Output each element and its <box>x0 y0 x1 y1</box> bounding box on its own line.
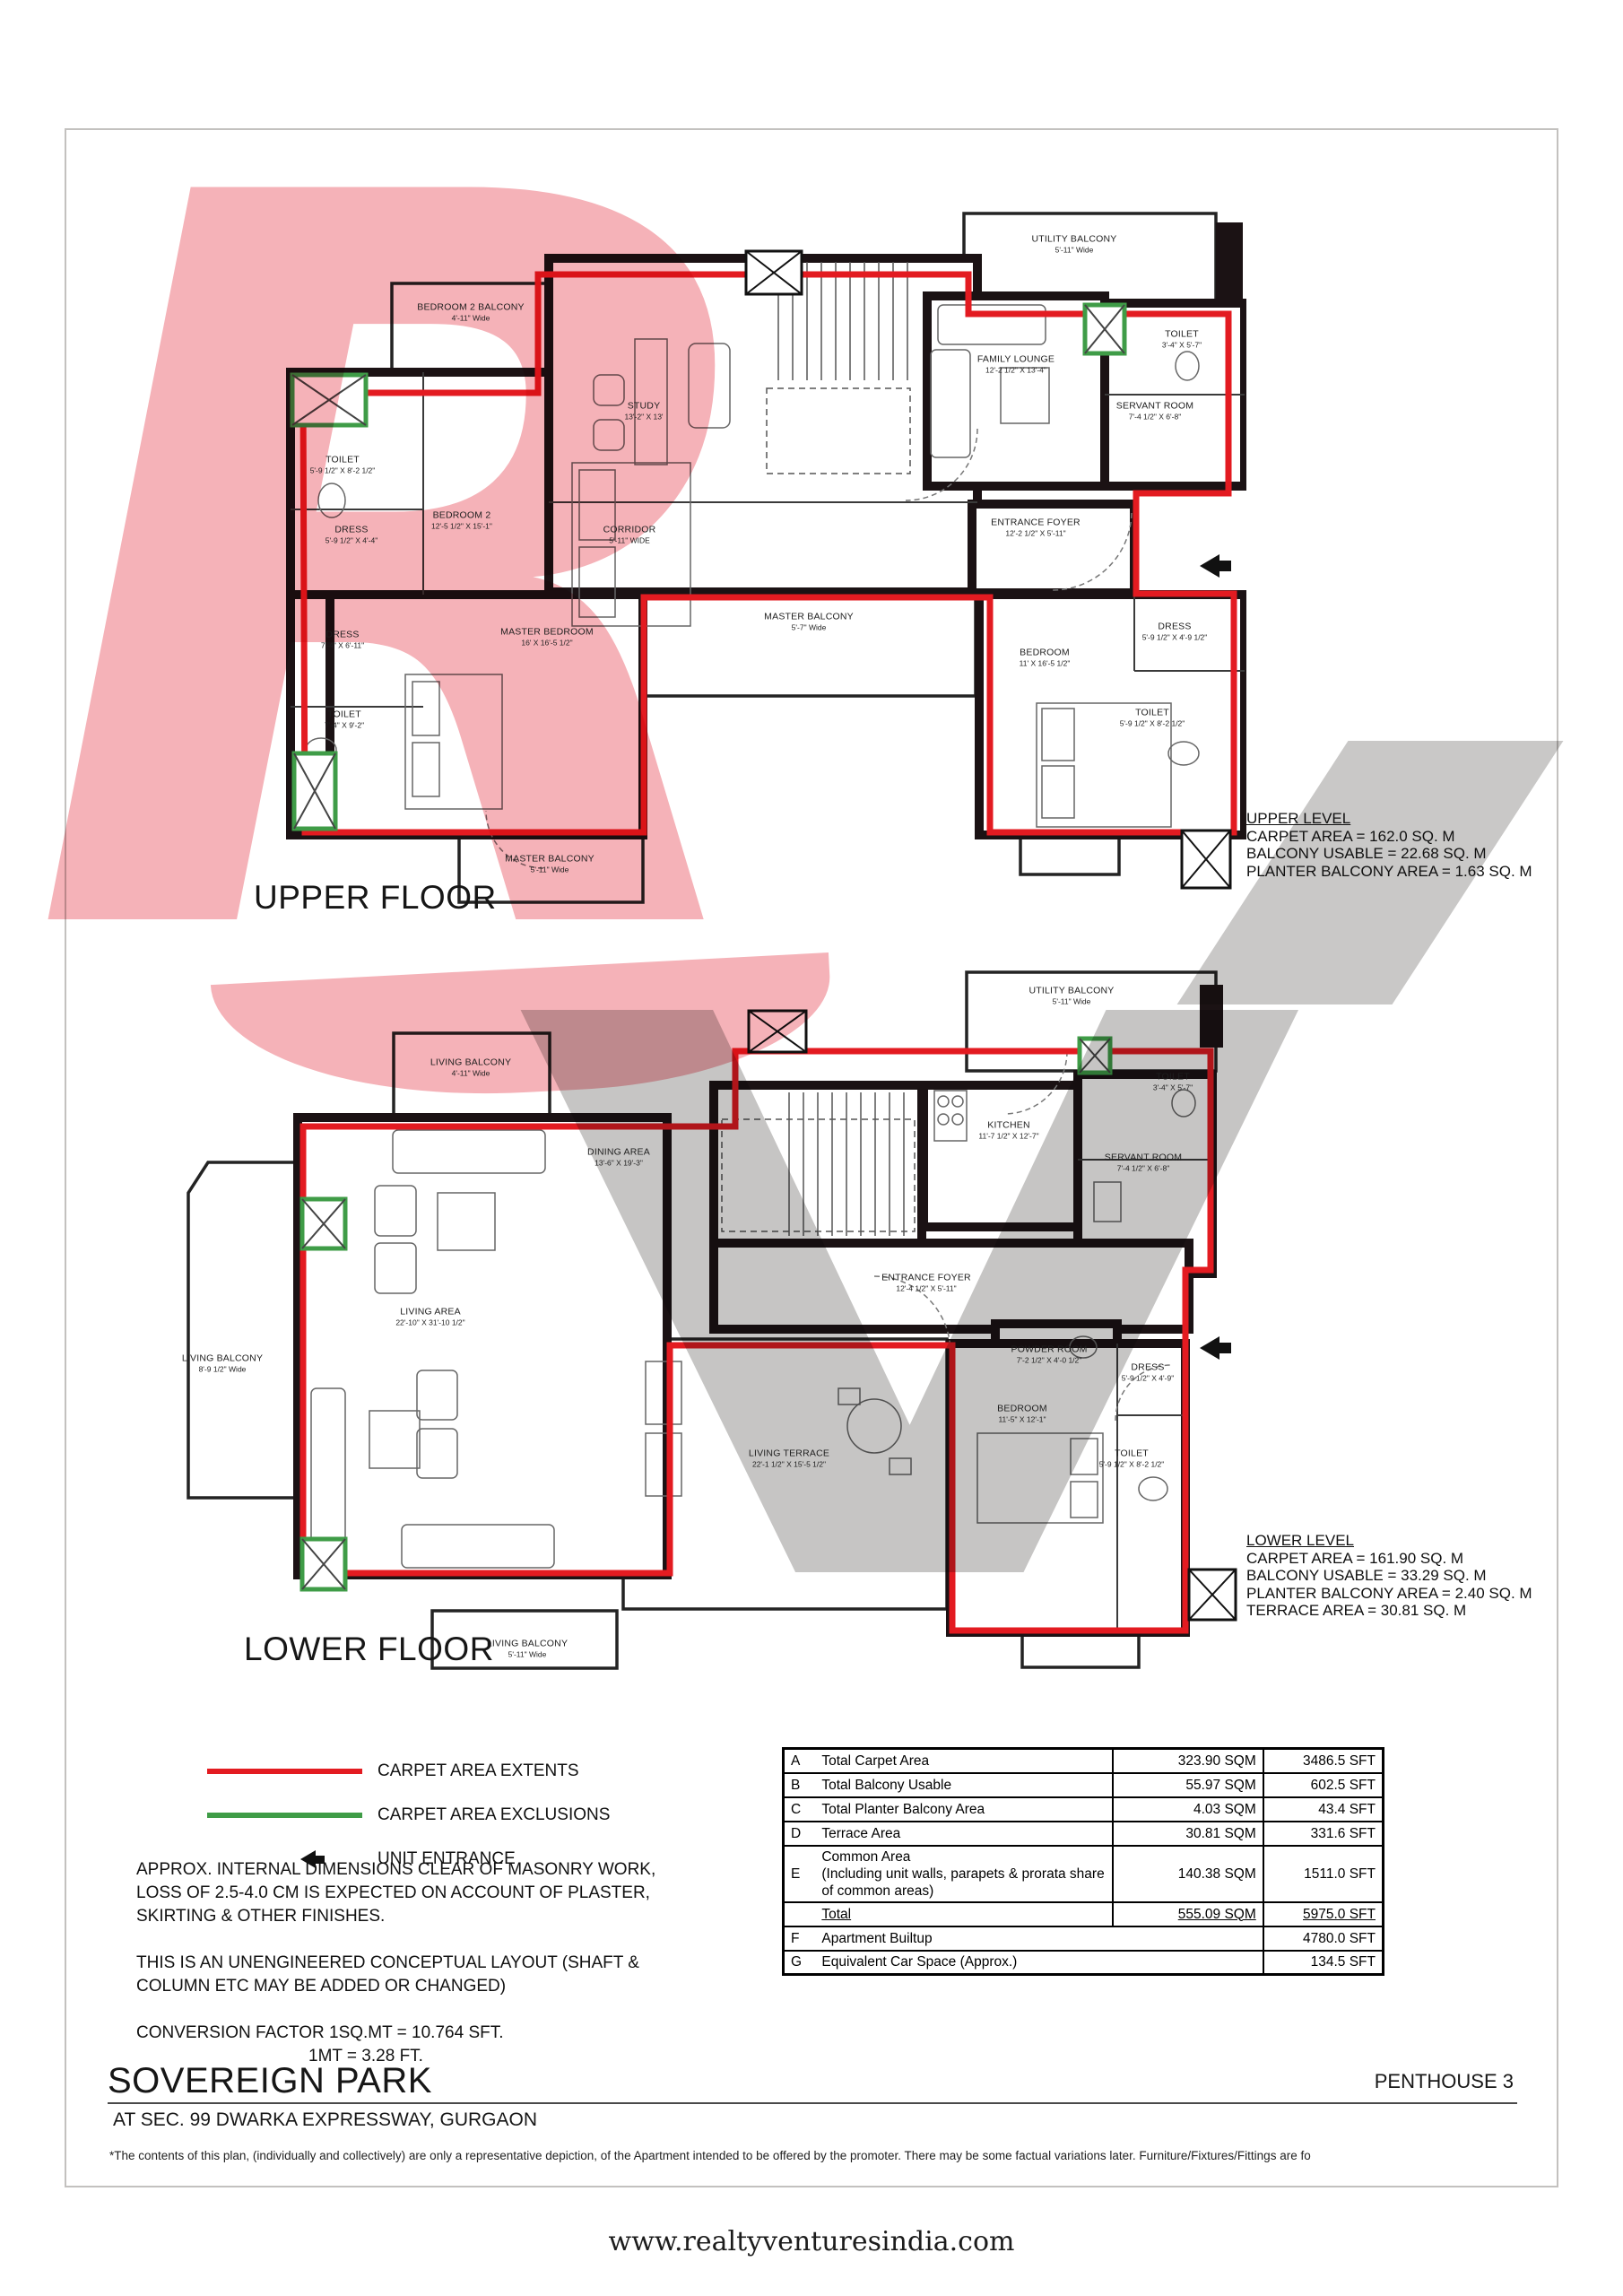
note-conversion-1: CONVERSION FACTOR 1SQ.MT = 10.764 SFT. <box>136 2022 674 2045</box>
room-label: LIVING AREA22'-10" X 31'-10 1/2" <box>395 1307 464 1327</box>
room-label: MASTER BALCONY5'-7" Wide <box>764 612 854 632</box>
lower-level-stats-lines: CARPET AREA = 161.90 SQ. MBALCONY USABLE… <box>1246 1550 1532 1620</box>
room-label: BEDROOM 212'-5 1/2" X 15'-1" <box>431 510 492 531</box>
room-label: ENTRANCE FOYER12'-2 1/2" X 5'-11" <box>991 517 1081 538</box>
table-cell: 4.03 SQM <box>1113 1797 1263 1822</box>
table-cell: G <box>784 1951 816 1975</box>
table-row: Total555.09 SQM5975.0 SFT <box>784 1902 1384 1926</box>
exclusion-swatch-icon <box>207 1805 362 1825</box>
stat-line: PLANTER BALCONY AREA = 1.63 SQ. M <box>1246 863 1532 881</box>
table-cell: B <box>784 1773 816 1797</box>
table-cell: F <box>784 1926 816 1951</box>
table-cell: Total <box>815 1902 1113 1926</box>
table-row: ATotal Carpet Area323.90 SQM3486.5 SFT <box>784 1749 1384 1773</box>
project-name: SOVEREIGN PARK <box>108 2061 432 2101</box>
stat-line: CARPET AREA = 162.0 SQ. M <box>1246 828 1532 846</box>
room-label: LIVING TERRACE22'-1 1/2" X 15'-5 1/2" <box>749 1448 829 1469</box>
room-label: SERVANT ROOM7'-4 1/2" X 6'-8" <box>1116 401 1193 422</box>
table-cell: 3486.5 SFT <box>1263 1749 1384 1773</box>
upper-level-stats-title: UPPER LEVEL <box>1246 810 1532 828</box>
room-label: TOILET3'-4" X 5'-7" <box>1162 329 1202 350</box>
table-row: ECommon Area(Including unit walls, parap… <box>784 1846 1384 1902</box>
table-row: GEquivalent Car Space (Approx.)134.5 SFT <box>784 1951 1384 1975</box>
table-row: CTotal Planter Balcony Area4.03 SQM43.4 … <box>784 1797 1384 1822</box>
table-cell: Equivalent Car Space (Approx.) <box>815 1951 1263 1975</box>
stat-line: PLANTER BALCONY AREA = 2.40 SQ. M <box>1246 1585 1532 1603</box>
room-label: STUDY13'-2" X 13' <box>624 401 663 422</box>
table-cell: Terrace Area <box>815 1822 1113 1846</box>
room-label: TOILET7'-4" X 9'-2" <box>325 709 364 730</box>
disclaimer: *The contents of this plan, (individuall… <box>109 2149 1535 2162</box>
room-label: MASTER BEDROOM16' X 16'-5 1/2" <box>500 627 594 648</box>
extent-swatch-icon <box>207 1761 362 1781</box>
table-cell: 4780.0 SFT <box>1263 1926 1384 1951</box>
room-label: LIVING BALCONY8'-9 1/2" Wide <box>182 1353 263 1374</box>
table-cell: 323.90 SQM <box>1113 1749 1263 1773</box>
table-cell: E <box>784 1846 816 1902</box>
unit-entrance-arrow-lower <box>1200 1336 1237 1360</box>
table-cell: Total Carpet Area <box>815 1749 1113 1773</box>
room-label: DRESS7'-4" X 6'-11" <box>321 630 364 650</box>
unit-entrance-arrow-upper <box>1200 554 1237 578</box>
room-label: CORRIDOR5'-11" WIDE <box>603 525 656 545</box>
table-cell: Total Planter Balcony Area <box>815 1797 1113 1822</box>
room-label: POWDER ROOM7'-2 1/2" X 4'-0 1/2" <box>1011 1344 1087 1365</box>
legend-label: CARPET AREA EXCLUSIONS <box>378 1805 610 1825</box>
table-cell: 55.97 SQM <box>1113 1773 1263 1797</box>
lower-level-stats: LOWER LEVEL CARPET AREA = 161.90 SQ. MBA… <box>1246 1532 1532 1620</box>
table-cell: 134.5 SFT <box>1263 1951 1384 1975</box>
room-label: DRESS5'-9 1/2" X 4'-4" <box>325 525 378 545</box>
note-layout: THIS IS AN UNENGINEERED CONCEPTUAL LAYOU… <box>136 1952 674 1998</box>
room-label: DINING AREA13'-6" X 19'-3" <box>587 1147 650 1168</box>
table-cell: Apartment Builtup <box>815 1926 1263 1951</box>
table-cell: 30.81 SQM <box>1113 1822 1263 1846</box>
table-cell: 140.38 SQM <box>1113 1846 1263 1902</box>
table-cell: 555.09 SQM <box>1113 1902 1263 1926</box>
table-cell: C <box>784 1797 816 1822</box>
room-label: DRESS5'-9 1/2" X 4'-9" <box>1122 1362 1174 1383</box>
legend-label: CARPET AREA EXTENTS <box>378 1761 579 1781</box>
note-dimensions: APPROX. INTERNAL DIMENSIONS CLEAR OF MAS… <box>136 1858 674 1928</box>
table-cell: A <box>784 1749 816 1773</box>
lower-floor-room-labels: LIVING BALCONY4'-11" WideDINING AREA13'-… <box>161 967 1246 1675</box>
table-cell: 1511.0 SFT <box>1263 1846 1384 1902</box>
room-label: TOILET3'-4" X 5'-7" <box>1153 1072 1193 1092</box>
room-label: LIVING BALCONY4'-11" Wide <box>430 1057 511 1078</box>
room-label: TOILET5'-9 1/2" X 8'-2 1/2" <box>1120 708 1185 728</box>
room-label: DRESS5'-9 1/2" X 4'-9 1/2" <box>1142 622 1208 642</box>
project-address: AT SEC. 99 DWARKA EXPRESSWAY, GURGAON <box>113 2109 537 2131</box>
website-url: www.realtyventuresindia.com <box>0 2226 1623 2257</box>
upper-level-stats: UPPER LEVEL CARPET AREA = 162.0 SQ. MBAL… <box>1246 810 1532 880</box>
table-cell: 5975.0 SFT <box>1263 1902 1384 1926</box>
table-row: BTotal Balcony Usable55.97 SQM602.5 SFT <box>784 1773 1384 1797</box>
stat-line: BALCONY USABLE = 33.29 SQ. M <box>1246 1567 1532 1585</box>
room-label: BEDROOM11' X 16'-5 1/2" <box>1020 648 1071 668</box>
lower-level-stats-title: LOWER LEVEL <box>1246 1532 1532 1550</box>
footer-divider <box>108 2102 1517 2104</box>
stat-line: CARPET AREA = 161.90 SQ. M <box>1246 1550 1532 1568</box>
room-label: ENTRANCE FOYER12'-4 1/2" X 5'-11" <box>881 1273 971 1293</box>
table-cell: 331.6 SFT <box>1263 1822 1384 1846</box>
legend-item-extent: CARPET AREA EXTENTS <box>207 1761 610 1781</box>
room-label: UTILITY BALCONY5'-11" Wide <box>1032 234 1117 255</box>
upper-floor-room-labels: BEDROOM 2 BALCONY4'-11" WideTOILET5'-9 1… <box>278 204 1246 922</box>
table-row: DTerrace Area30.81 SQM331.6 SFT <box>784 1822 1384 1846</box>
table-cell: D <box>784 1822 816 1846</box>
table-cell: 602.5 SFT <box>1263 1773 1384 1797</box>
table-cell <box>784 1902 816 1926</box>
stat-line: TERRACE AREA = 30.81 SQ. M <box>1246 1602 1532 1620</box>
floor-plan-sheet: R V BEDROOM 2 BALCONY4'-11" WideTOILET5'… <box>0 0 1623 2296</box>
room-label: TOILET5'-9 1/2" X 8'-2 1/2" <box>310 455 376 475</box>
room-label: SERVANT ROOM7'-4 1/2" X 6'-8" <box>1105 1152 1182 1173</box>
notes: APPROX. INTERNAL DIMENSIONS CLEAR OF MAS… <box>136 1858 674 2068</box>
table-cell: 43.4 SFT <box>1263 1797 1384 1822</box>
lower-floor-title: LOWER FLOOR <box>244 1631 494 1668</box>
room-label: MASTER BALCONY5'-11" Wide <box>505 854 595 874</box>
stat-line: BALCONY USABLE = 22.68 SQ. M <box>1246 845 1532 863</box>
room-label: KITCHEN11'-7 1/2" X 12'-7" <box>978 1120 1038 1141</box>
upper-floor-title: UPPER FLOOR <box>254 879 497 917</box>
area-table: ATotal Carpet Area323.90 SQM3486.5 SFTBT… <box>782 1747 1384 1976</box>
room-label: BEDROOM11'-5" X 12'-1" <box>997 1404 1047 1424</box>
room-label: LIVING BALCONY5'-11" Wide <box>487 1639 568 1659</box>
room-label: UTILITY BALCONY5'-11" Wide <box>1029 986 1115 1006</box>
table-cell: Total Balcony Usable <box>815 1773 1113 1797</box>
upper-level-stats-lines: CARPET AREA = 162.0 SQ. MBALCONY USABLE … <box>1246 828 1532 881</box>
unit-name: PENTHOUSE 3 <box>1375 2070 1514 2093</box>
room-label: FAMILY LOUNGE12'-2 1/2" X 13'-4" <box>977 354 1055 375</box>
room-label: TOILET5'-9 1/2" X 8'-2 1/2" <box>1099 1448 1165 1469</box>
table-cell: Common Area(Including unit walls, parape… <box>815 1846 1113 1902</box>
room-label: BEDROOM 2 BALCONY4'-11" Wide <box>417 302 525 323</box>
legend-item-exclusion: CARPET AREA EXCLUSIONS <box>207 1805 610 1825</box>
table-row: FApartment Builtup4780.0 SFT <box>784 1926 1384 1951</box>
